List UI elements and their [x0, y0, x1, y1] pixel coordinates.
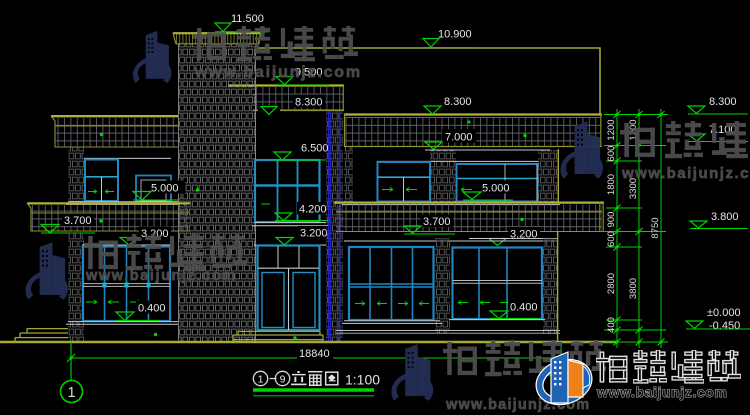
svg-text:900: 900: [606, 212, 617, 228]
svg-text:7.000: 7.000: [445, 132, 473, 144]
svg-text:www.baijunjz.com: www.baijunjz.com: [596, 384, 727, 400]
svg-text:8.300: 8.300: [295, 97, 323, 109]
svg-text:9: 9: [280, 374, 286, 386]
svg-text:-0.450: -0.450: [709, 320, 740, 332]
svg-text:10.900: 10.900: [438, 29, 472, 41]
svg-text:3.200: 3.200: [300, 228, 328, 240]
svg-text:1200: 1200: [606, 119, 617, 140]
svg-text:8750: 8750: [650, 217, 661, 238]
svg-text:3.800: 3.800: [711, 211, 739, 223]
svg-text:0.400: 0.400: [138, 303, 166, 315]
svg-text:±0.000: ±0.000: [707, 307, 741, 319]
svg-text:0.400: 0.400: [510, 302, 538, 314]
svg-text:3800: 3800: [628, 278, 639, 299]
svg-text:600: 600: [606, 146, 617, 162]
svg-text:18840: 18840: [299, 348, 330, 360]
svg-text:2800: 2800: [606, 273, 617, 294]
svg-text:www.baijunjz.co: www.baijunjz.co: [621, 165, 750, 182]
svg-text:6.500: 6.500: [301, 143, 329, 155]
svg-text:600: 600: [606, 231, 617, 247]
svg-text:8.300: 8.300: [444, 96, 472, 108]
svg-text:1: 1: [67, 385, 75, 401]
svg-text:400: 400: [606, 317, 617, 333]
svg-text:3.700: 3.700: [423, 216, 451, 228]
svg-text:5.000: 5.000: [482, 183, 510, 195]
svg-text:www.baijunjz.com: www.baijunjz.com: [194, 64, 362, 81]
svg-text:1800: 1800: [606, 174, 617, 195]
svg-text:1: 1: [258, 374, 264, 386]
svg-text:4.200: 4.200: [299, 204, 327, 216]
svg-text:1:100: 1:100: [345, 372, 380, 388]
svg-text:3.700: 3.700: [64, 215, 92, 227]
svg-text:11.500: 11.500: [231, 13, 264, 25]
svg-text:www.baijunjz.com: www.baijunjz.com: [85, 268, 237, 284]
svg-text:8.300: 8.300: [709, 96, 737, 108]
svg-text:5.000: 5.000: [151, 183, 179, 195]
